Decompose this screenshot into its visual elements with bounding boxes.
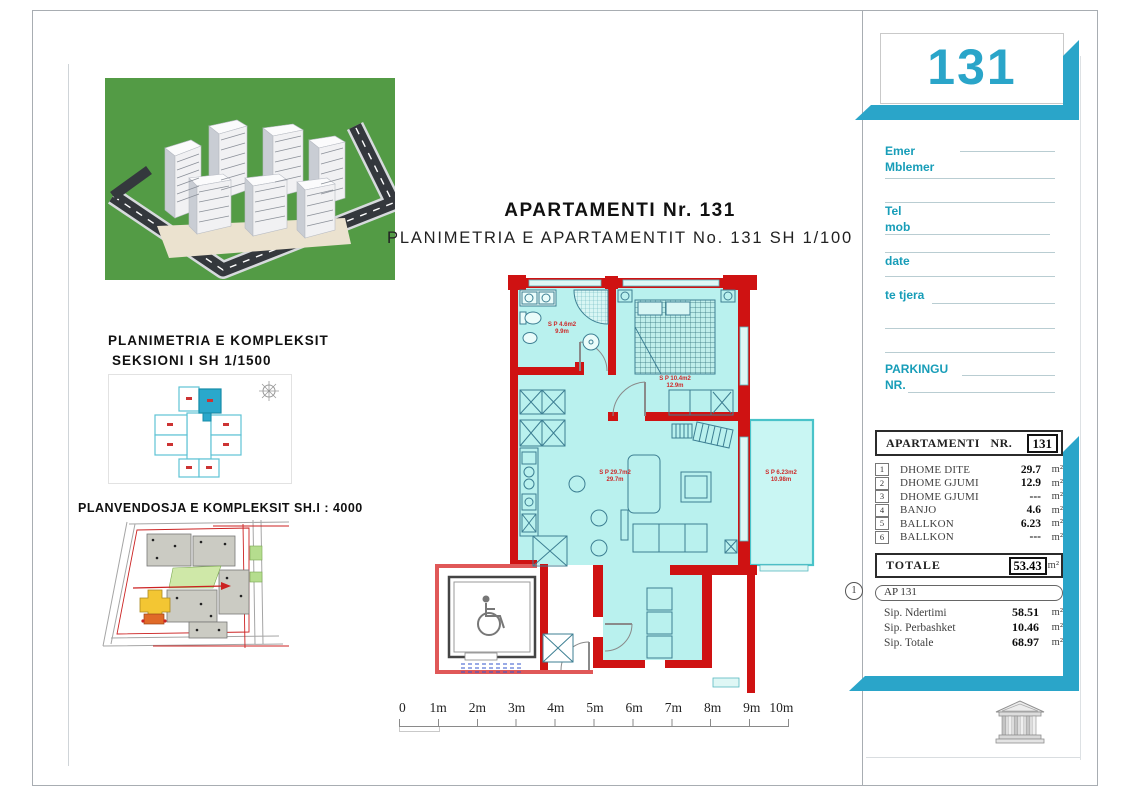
ap-row-value: 58.51 xyxy=(999,605,1039,620)
room-area: 4.6 xyxy=(1005,504,1041,516)
sheet-number-box: 131 xyxy=(880,33,1064,104)
areas-table-panel: APARTAMENTI NR. 131 1 DHOME DITE 29.7 m²… xyxy=(875,430,1063,674)
field-label-parkingu: PARKINGU xyxy=(885,362,948,376)
totale-unit: m² xyxy=(1048,560,1059,571)
ap-row-value: 10.46 xyxy=(999,620,1039,635)
ap-index-circle: 1 xyxy=(845,582,863,600)
ruler-tick-label: 2m xyxy=(469,700,486,716)
ruler-tick-label: 1m xyxy=(430,700,447,716)
balcony-label: S P 6.23m2 xyxy=(765,470,797,476)
field-line[interactable] xyxy=(885,276,1055,277)
field-label-emer: Emer xyxy=(885,144,915,158)
table-row: 6 BALLKON --- m² xyxy=(875,531,1063,545)
complex-3d-render xyxy=(105,78,395,280)
field-line[interactable] xyxy=(885,352,1055,353)
ap-row-name: Sip. Totale xyxy=(884,637,999,649)
totale-label: TOTALE xyxy=(886,558,1009,573)
room-name: DHOME DITE xyxy=(900,464,1005,476)
ap-row-name: Sip. Ndertimi xyxy=(884,607,999,619)
room-area: 12.9 xyxy=(1005,477,1041,489)
table-row: 2 DHOME GJUMI 12.9 m² xyxy=(875,477,1063,491)
table-header: APARTAMENTI NR. 131 xyxy=(875,430,1063,456)
section-key-diagram xyxy=(108,374,292,484)
room-name: DHOME GJUMI xyxy=(900,477,1005,489)
apartment-floor-plan: S P 4.6m2 9.9m S P 10.4m2 12.9m S P 29.7… xyxy=(425,272,845,697)
table-header-label: APARTAMENTI NR. xyxy=(886,436,1012,451)
field-line[interactable] xyxy=(885,252,1055,253)
living-label: S P 29.7m2 xyxy=(599,470,631,476)
scale-ruler-labels: 01m2m3m4m5m6m7m8m9m10m xyxy=(399,700,791,716)
panel-shadow-bottom xyxy=(849,676,1079,691)
svg-text:9.9m: 9.9m xyxy=(555,329,569,335)
bedroom-label: S P 10.4m2 xyxy=(659,376,691,382)
ruler-tick-label: 10m xyxy=(769,700,793,716)
field-label-mob: mob xyxy=(885,220,910,234)
ap-row: Sip. Perbashket 10.46 m² xyxy=(884,620,1063,635)
room-area: --- xyxy=(1005,491,1041,503)
field-label-tel: Tel xyxy=(885,204,901,218)
row-number-box: 2 xyxy=(875,477,889,490)
field-line[interactable] xyxy=(885,202,1055,203)
table-header-number: 131 xyxy=(1027,434,1059,453)
table-row: 3 DHOME GJUMI --- m² xyxy=(875,490,1063,504)
room-unit: m² xyxy=(1041,491,1063,502)
sheet-title-block: APARTAMENTI Nr. 131 PLANIMETRIA E APARTA… xyxy=(360,200,880,248)
sheet-subtitle: PLANIMETRIA E APARTAMENTIT No. 131 SH 1/… xyxy=(360,229,880,248)
ruler-tick-label: 9m xyxy=(743,700,760,716)
ruler-tick-label: 4m xyxy=(547,700,564,716)
field-line[interactable] xyxy=(885,178,1055,179)
sheet-title: APARTAMENTI Nr. 131 xyxy=(360,200,880,222)
row-number-box: 1 xyxy=(875,463,889,476)
section-title-line2: SEKSIONI I SH 1/1500 xyxy=(112,353,272,368)
architect-logo-icon xyxy=(993,699,1047,745)
room-name: DHOME GJUMI xyxy=(900,491,1005,503)
field-line[interactable] xyxy=(885,328,1055,329)
svg-text:12.9m: 12.9m xyxy=(666,383,683,389)
site-highlight-building xyxy=(140,590,170,624)
panel-shadow-right xyxy=(1063,436,1079,691)
field-label-nr: NR. xyxy=(885,378,906,392)
room-unit: m² xyxy=(1041,505,1063,516)
sheet-number: 131 xyxy=(881,34,1063,103)
ap-row-value: 68.97 xyxy=(999,635,1039,650)
field-label-date: date xyxy=(885,254,910,268)
footer-line xyxy=(866,757,1080,758)
table-row: 5 BALLKON 6.23 m² xyxy=(875,517,1063,531)
field-label-te-tjera: te tjera xyxy=(885,288,924,302)
field-line[interactable] xyxy=(962,375,1055,376)
ruler-tick-label: 0 xyxy=(399,700,406,716)
siteplan-title: PLANVENDOSJA E KOMPLEKSIT SH.I : 4000 xyxy=(78,501,363,515)
scale-ruler-first-segment xyxy=(399,727,440,732)
totale-value: 53.43 xyxy=(1009,557,1047,575)
row-number-box: 4 xyxy=(875,504,889,517)
ap-row-unit: m² xyxy=(1039,637,1063,648)
svg-text:29.7m: 29.7m xyxy=(606,477,623,483)
field-line[interactable] xyxy=(960,151,1055,152)
ap-label: AP 131 xyxy=(875,585,1063,601)
table-row: 1 DHOME DITE 29.7 m² xyxy=(875,463,1063,477)
ruler-tick-label: 8m xyxy=(704,700,721,716)
table-row: 4 BANJO 4.6 m² xyxy=(875,504,1063,518)
field-line[interactable] xyxy=(885,234,1050,235)
sheet-number-shadow-bottom xyxy=(855,105,1079,120)
ruler-tick-label: 5m xyxy=(586,700,603,716)
field-label-mblemer: Mblemer xyxy=(885,160,934,174)
section-title-line1: PLANIMETRIA E KOMPLEKSIT xyxy=(108,333,329,348)
row-number-box: 5 xyxy=(875,517,889,530)
field-line[interactable] xyxy=(908,392,1055,393)
bathroom-label: S P 4.6m2 xyxy=(548,322,577,328)
site-plan xyxy=(93,518,295,658)
ap-row: Sip. Totale 68.97 m² xyxy=(884,635,1063,650)
table-rows: 1 DHOME DITE 29.7 m² 2 DHOME GJUMI 12.9 … xyxy=(875,463,1063,544)
unit-outlines xyxy=(155,387,241,477)
toilet xyxy=(525,312,541,324)
room-unit: m² xyxy=(1041,464,1063,475)
inner-right-line xyxy=(1080,56,1081,760)
bidet xyxy=(523,333,537,344)
ap-row-name: Sip. Perbashket xyxy=(884,622,999,634)
balcony xyxy=(750,420,813,565)
ruler-tick-label: 3m xyxy=(508,700,525,716)
svg-text:10.98m: 10.98m xyxy=(771,477,791,483)
ruler-tick-label: 7m xyxy=(665,700,682,716)
ap-row-unit: m² xyxy=(1039,607,1063,618)
room-name: BALLKON xyxy=(900,518,1005,530)
right-panel-separator xyxy=(862,10,863,785)
ap-row: Sip. Ndertimi 58.51 m² xyxy=(884,605,1063,620)
field-line[interactable] xyxy=(932,303,1055,304)
room-unit: m² xyxy=(1041,518,1063,529)
columns xyxy=(1002,716,1036,735)
ap-row-unit: m² xyxy=(1039,622,1063,633)
room-name: BALLKON xyxy=(900,531,1005,543)
row-number-box: 6 xyxy=(875,531,889,544)
ap-summary: AP 131 Sip. Ndertimi 58.51 m² Sip. Perba… xyxy=(875,585,1063,674)
scale-ruler-line xyxy=(399,719,789,727)
ap-rows: Sip. Ndertimi 58.51 m² Sip. Perbashket 1… xyxy=(875,605,1063,650)
ruler-tick-label: 6m xyxy=(626,700,643,716)
room-area: 6.23 xyxy=(1005,518,1041,530)
row-number-box: 3 xyxy=(875,490,889,503)
room-area: 29.7 xyxy=(1005,464,1041,476)
compass-icon xyxy=(259,381,279,401)
room-name: BANJO xyxy=(900,504,1005,516)
room-unit: m² xyxy=(1041,478,1063,489)
room-unit: m² xyxy=(1041,532,1063,543)
inner-left-line xyxy=(68,64,69,766)
room-area: --- xyxy=(1005,531,1041,543)
totale-row: TOTALE 53.43 m² xyxy=(875,553,1063,578)
